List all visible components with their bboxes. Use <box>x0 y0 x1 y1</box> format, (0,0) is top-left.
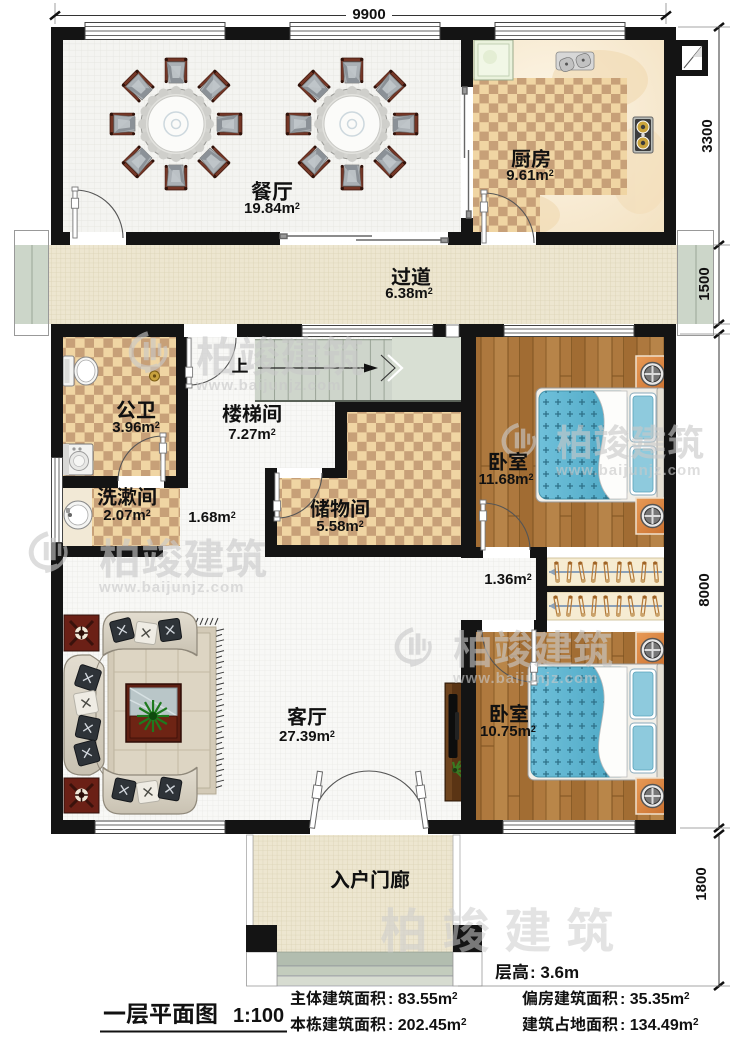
svg-text:: 83.55m2: : 83.55m2 <box>388 991 458 1008</box>
svg-text:: 134.49m2: : 134.49m2 <box>620 1017 699 1034</box>
svg-text:3300: 3300 <box>699 119 716 152</box>
svg-text:27.39m2: 27.39m2 <box>279 728 335 745</box>
svg-text:10.75m2: 10.75m2 <box>480 723 536 740</box>
svg-text:9.61m2: 9.61m2 <box>506 167 554 184</box>
svg-text:1800: 1800 <box>693 867 710 900</box>
svg-text:1500: 1500 <box>696 267 713 300</box>
svg-text:www.baijunjz.com: www.baijunjz.com <box>452 670 598 687</box>
svg-text:1.36m2: 1.36m2 <box>484 571 532 588</box>
svg-text:2.07m2: 2.07m2 <box>103 507 151 524</box>
svg-text:: 3.6m: : 3.6m <box>530 963 579 982</box>
svg-text:www.baijunjz.com: www.baijunjz.com <box>98 579 244 596</box>
svg-text:9900: 9900 <box>352 6 385 23</box>
svg-text:6.38m2: 6.38m2 <box>385 285 433 302</box>
svg-text:5.58m2: 5.58m2 <box>316 518 364 535</box>
svg-text:11.68m2: 11.68m2 <box>478 471 533 488</box>
svg-text:www.baijunjz.com: www.baijunjz.com <box>555 462 701 479</box>
svg-text:19.84m2: 19.84m2 <box>244 200 300 217</box>
svg-text:7.27m2: 7.27m2 <box>228 426 276 443</box>
svg-text:1:100: 1:100 <box>233 1005 284 1027</box>
svg-text:3.96m2: 3.96m2 <box>112 419 160 436</box>
svg-text:www.baijunjz.com: www.baijunjz.com <box>195 377 341 394</box>
svg-text:: 35.35m2: : 35.35m2 <box>620 991 690 1008</box>
svg-text:8000: 8000 <box>696 573 713 606</box>
svg-text:1.68m2: 1.68m2 <box>188 509 236 526</box>
svg-text:: 202.45m2: : 202.45m2 <box>388 1017 467 1034</box>
